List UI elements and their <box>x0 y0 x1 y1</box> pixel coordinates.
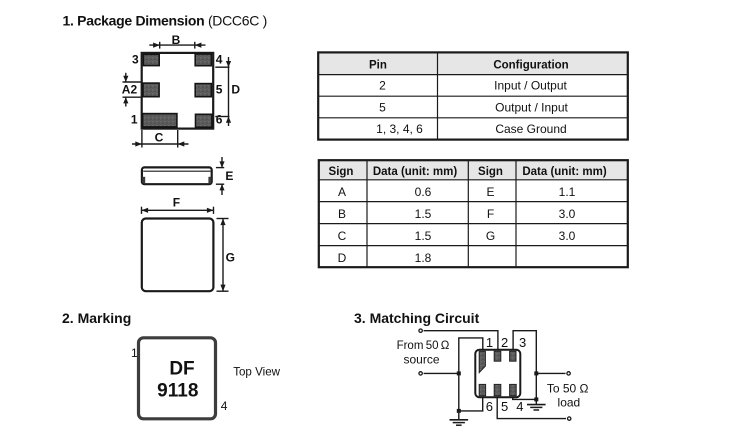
svg-text:A: A <box>338 185 346 199</box>
svg-text:Configuration: Configuration <box>493 60 568 72</box>
svg-text:B: B <box>172 33 181 47</box>
svg-text:G: G <box>486 229 495 243</box>
svg-text:4: 4 <box>221 399 228 413</box>
svg-text:1.5: 1.5 <box>415 207 432 221</box>
svg-text:2. Marking: 2. Marking <box>62 310 131 326</box>
svg-text:2: 2 <box>501 335 508 350</box>
svg-text:6: 6 <box>216 113 223 127</box>
svg-text:D: D <box>338 251 347 265</box>
svg-text:load: load <box>558 396 581 410</box>
svg-text:Pin: Pin <box>369 60 387 72</box>
svg-text:1: 1 <box>486 335 493 350</box>
svg-text:1, 3, 4, 6: 1, 3, 4, 6 <box>376 122 423 136</box>
svg-text:1: 1 <box>131 346 138 360</box>
svg-text:C: C <box>338 229 347 243</box>
svg-text:C: C <box>155 131 164 145</box>
svg-text:4: 4 <box>516 399 523 414</box>
svg-text:Case Ground: Case Ground <box>495 122 566 136</box>
svg-text:9118: 9118 <box>157 380 198 401</box>
svg-text:1.1: 1.1 <box>559 185 576 199</box>
svg-text:1. Package Dimension (DCC6C ): 1. Package Dimension (DCC6C ) <box>63 13 267 29</box>
svg-text:3: 3 <box>132 53 139 67</box>
svg-text:E: E <box>486 185 494 199</box>
svg-text:G: G <box>226 250 235 264</box>
svg-text:F: F <box>487 207 494 221</box>
svg-text:To 50 Ω: To 50 Ω <box>547 382 589 396</box>
svg-text:Sign: Sign <box>329 166 354 178</box>
svg-text:Input / Output: Input / Output <box>494 79 567 93</box>
svg-text:3: 3 <box>519 335 526 350</box>
svg-text:E: E <box>225 169 233 183</box>
svg-text:5: 5 <box>216 83 223 97</box>
svg-text:3. Matching Circuit: 3. Matching Circuit <box>354 310 480 326</box>
svg-text:Data (unit: mm): Data (unit: mm) <box>373 166 458 178</box>
svg-text:4: 4 <box>216 53 223 67</box>
svg-text:1: 1 <box>131 113 138 127</box>
svg-text:1.5: 1.5 <box>415 229 432 243</box>
svg-text:Output / Input: Output / Input <box>495 100 568 114</box>
svg-text:DF: DF <box>169 359 194 380</box>
svg-text:1.8: 1.8 <box>415 251 432 265</box>
svg-text:3.0: 3.0 <box>559 229 576 243</box>
svg-text:B: B <box>338 207 346 221</box>
svg-text:F: F <box>173 196 180 210</box>
svg-text:From 50 Ω: From 50 Ω <box>397 340 450 352</box>
svg-text:source: source <box>403 353 439 367</box>
svg-text:A: A <box>122 82 131 96</box>
svg-text:5: 5 <box>379 100 386 114</box>
svg-text:D: D <box>231 83 240 97</box>
svg-text:2: 2 <box>379 79 386 93</box>
svg-text:Top View: Top View <box>233 365 280 378</box>
svg-text:Data (unit: mm): Data (unit: mm) <box>522 166 607 178</box>
svg-text:6: 6 <box>486 399 493 414</box>
svg-text:2: 2 <box>131 83 138 97</box>
svg-text:0.6: 0.6 <box>415 185 432 199</box>
svg-text:5: 5 <box>501 399 508 414</box>
svg-text:3.0: 3.0 <box>559 207 576 221</box>
svg-text:Sign: Sign <box>478 166 503 178</box>
